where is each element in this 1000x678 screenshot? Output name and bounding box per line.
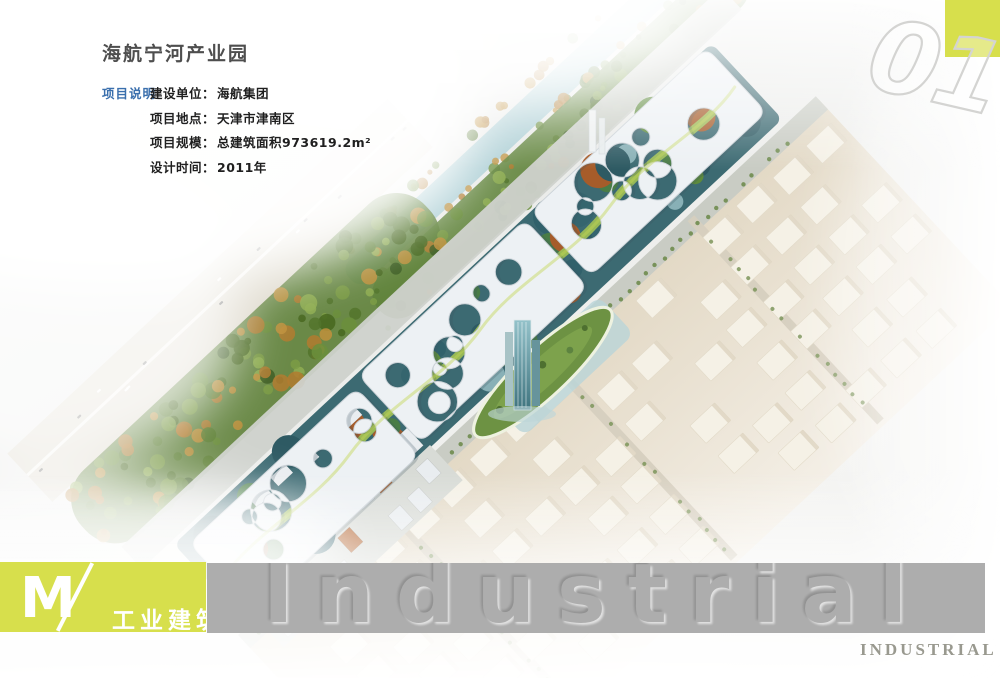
info-row-scale: 项目规模：总建筑面积973619.2m² bbox=[150, 132, 371, 157]
info-key: 设计时间： bbox=[150, 160, 215, 175]
section-letter: M bbox=[20, 562, 76, 632]
corner-brand-text: INDUSTRIAL bbox=[860, 640, 997, 660]
info-row-location: 项目地点：天津市津南区 bbox=[150, 108, 371, 133]
project-info-rows: 建设单位：海航集团 项目地点：天津市津南区 项目规模：总建筑面积973619.2… bbox=[150, 83, 371, 181]
info-value: 天津市津南区 bbox=[217, 111, 295, 126]
info-key: 项目地点： bbox=[150, 111, 215, 126]
info-row-builder: 建设单位：海航集团 bbox=[150, 83, 371, 108]
page-title: 海航宁河产业园 bbox=[102, 39, 249, 66]
info-value: 总建筑面积973619.2m² bbox=[217, 135, 371, 150]
info-value: 2011年 bbox=[217, 160, 267, 175]
info-value: 海航集团 bbox=[217, 86, 269, 101]
watermark-text: Industrial bbox=[207, 563, 985, 627]
info-key: 项目规模： bbox=[150, 135, 215, 150]
info-key: 建设单位： bbox=[150, 86, 215, 101]
watermark-band: Industrial bbox=[207, 563, 985, 633]
info-row-design-time: 设计时间：2011年 bbox=[150, 157, 371, 182]
